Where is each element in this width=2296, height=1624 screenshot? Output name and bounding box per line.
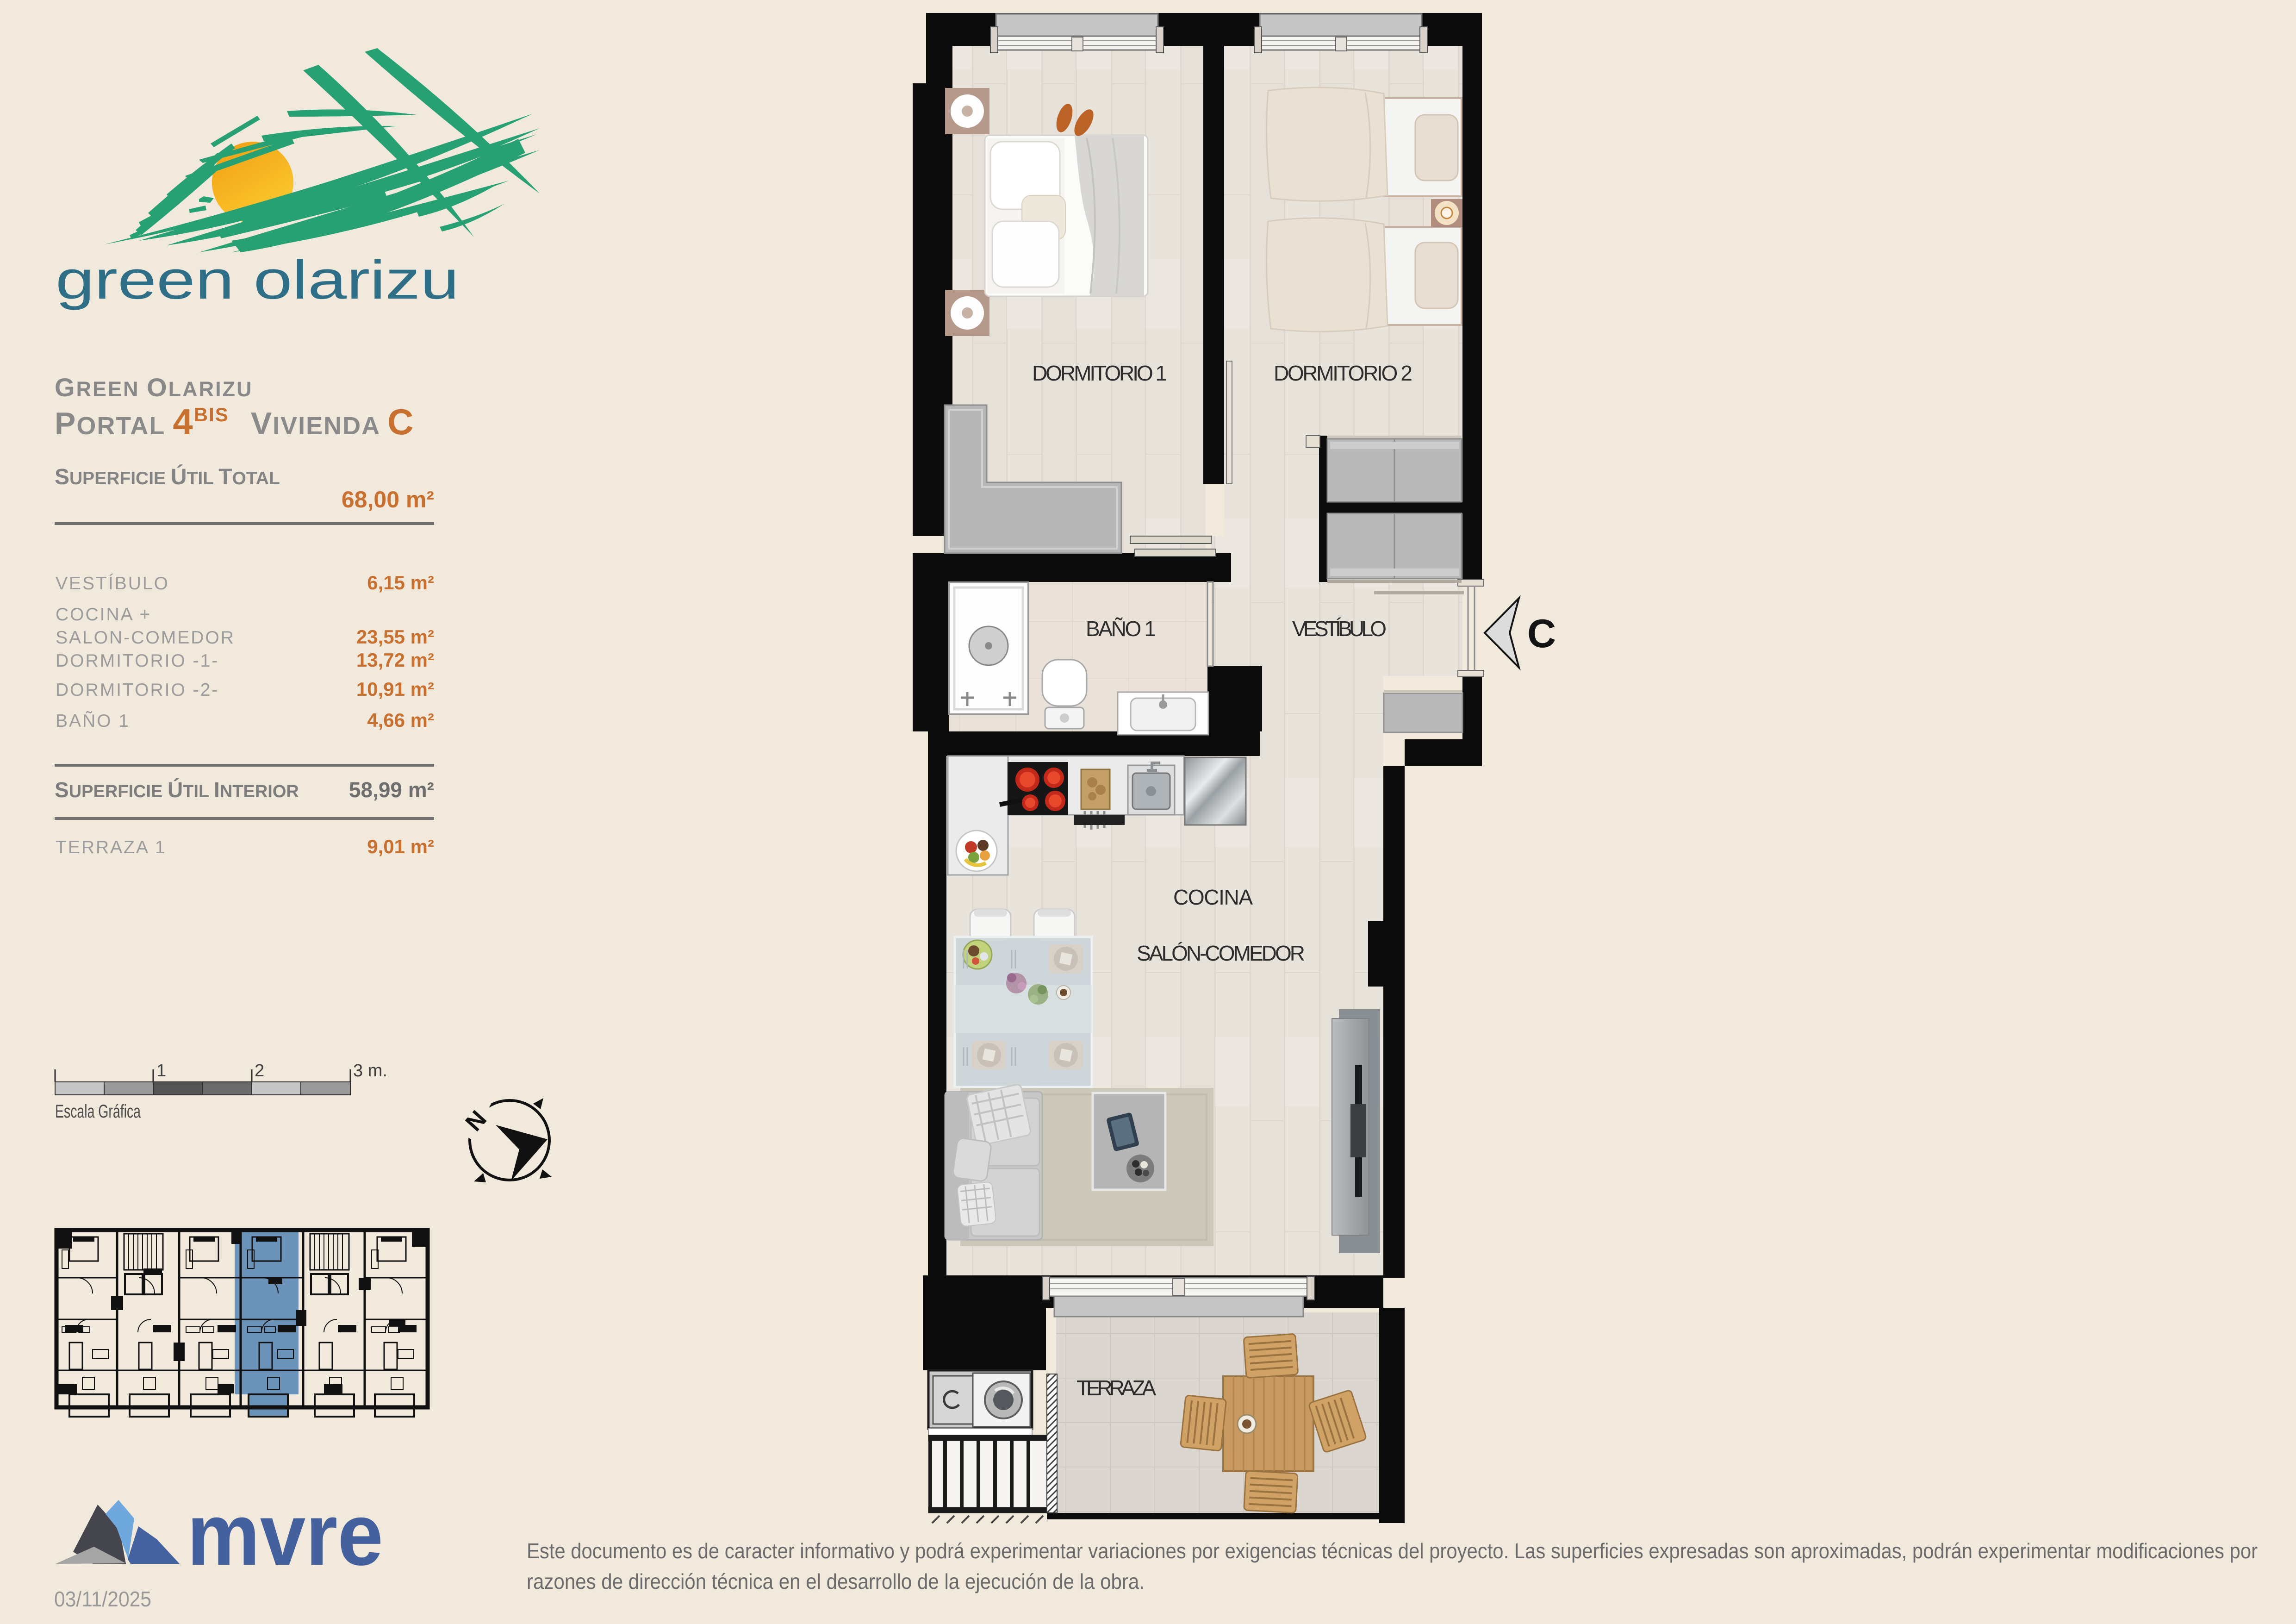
svg-text:1: 1 [156,1061,166,1081]
svg-text:68,00 m²: 68,00 m² [342,487,434,512]
svg-text:mvre: mvre [187,1486,383,1584]
svg-text:TERRAZA: TERRAZA [1076,1376,1156,1400]
svg-text:green olarizu: green olarizu [56,250,459,311]
svg-text:DORMITORIO 2: DORMITORIO 2 [1274,361,1412,385]
svg-text:Este documento es de caracter: Este documento es de caracter informativ… [527,1539,2258,1563]
svg-text:COCINA: COCINA [1173,885,1253,909]
svg-text:COCINA +: COCINA + [56,605,151,625]
svg-text:13,72 m²: 13,72 m² [356,649,434,671]
svg-text:DORMITORIO 1: DORMITORIO 1 [1032,361,1167,385]
svg-text:VESTÍBULO: VESTÍBULO [56,574,169,593]
svg-text:razones de dirección técnica e: razones de dirección técnica en el desar… [527,1569,1145,1593]
svg-text:DORMITORIO -2-: DORMITORIO -2- [56,680,219,700]
svg-text:GREEN OLARIZU: GREEN OLARIZU [55,373,253,402]
svg-text:2: 2 [255,1061,264,1081]
svg-text:6,15 m²: 6,15 m² [367,572,434,593]
svg-text:10,91 m²: 10,91 m² [356,678,434,700]
svg-text:BAÑO 1: BAÑO 1 [1086,617,1156,641]
svg-text:3 m.: 3 m. [353,1061,387,1081]
svg-text:Escala Gráfica: Escala Gráfica [55,1101,141,1122]
svg-text:58,99 m²: 58,99 m² [349,778,434,802]
svg-text:SALÓN-COMEDOR: SALÓN-COMEDOR [1137,941,1305,965]
svg-text:9,01 m²: 9,01 m² [367,836,434,857]
svg-text:BAÑO 1: BAÑO 1 [56,711,130,731]
svg-text:4,66 m²: 4,66 m² [367,709,434,731]
svg-text:SALON-COMEDOR: SALON-COMEDOR [56,628,235,648]
svg-text:TERRAZA 1: TERRAZA 1 [56,837,166,857]
svg-text:DORMITORIO -1-: DORMITORIO -1- [56,651,219,671]
svg-text:C: C [1527,612,1556,656]
svg-text:23,55 m²: 23,55 m² [356,626,434,648]
svg-text:VESTÍBULO: VESTÍBULO [1292,617,1387,641]
svg-text:03/11/2025: 03/11/2025 [54,1587,151,1611]
